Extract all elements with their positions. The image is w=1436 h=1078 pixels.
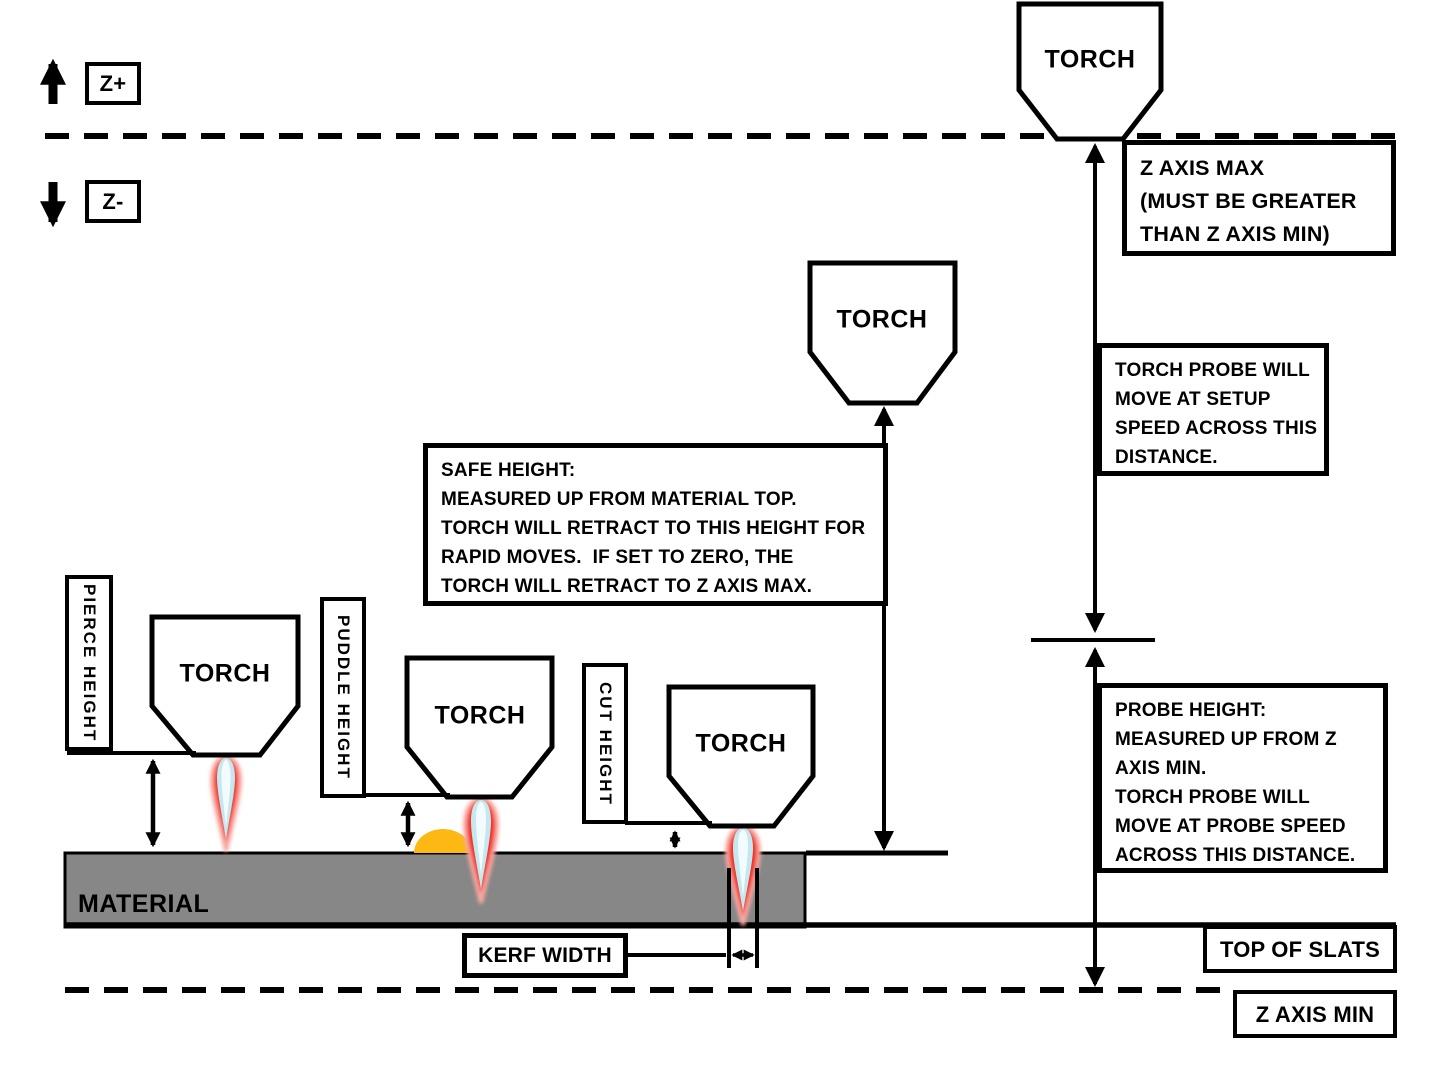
torch-label: TORCH xyxy=(1045,46,1136,75)
z-minus-label-box: Z- xyxy=(85,180,141,223)
material-label: MATERIAL xyxy=(78,890,209,919)
z-axis-min-label-box: Z AXIS MIN xyxy=(1233,990,1397,1038)
cut-height-label-box: CUT HEIGHT xyxy=(582,663,628,824)
kerf-width-label-box: KERF WIDTH xyxy=(462,933,628,978)
top-of-slats-label-box: TOP OF SLATS xyxy=(1203,925,1397,973)
z-plus-label-box: Z+ xyxy=(85,62,141,105)
probe-height-note-box: PROBE HEIGHT: MEASURED UP FROM Z AXIS MI… xyxy=(1097,683,1388,873)
torch-label: TORCH xyxy=(696,730,787,759)
z-axis-max-note-box: Z AXIS MAX (MUST BE GREATER THAN Z AXIS … xyxy=(1122,140,1396,256)
setup-speed-note-box: TORCH PROBE WILL MOVE AT SETUP SPEED ACR… xyxy=(1097,343,1329,476)
pierce-flame xyxy=(212,757,240,851)
molten-puddle xyxy=(414,829,472,853)
torch-label: TORCH xyxy=(837,306,928,335)
puddle-height-label-box: PUDDLE HEIGHT xyxy=(320,597,366,798)
safe-height-note-box: SAFE HEIGHT: MEASURED UP FROM MATERIAL T… xyxy=(423,443,888,606)
pierce-height-label-box: PIERCE HEIGHT xyxy=(65,575,113,751)
torch-label: TORCH xyxy=(435,702,526,731)
torch-label: TORCH xyxy=(180,660,271,689)
torch-height-diagram: TORCH TORCH TORCH TORCH TORCH Z+ Z- Z AX… xyxy=(0,0,1436,1078)
